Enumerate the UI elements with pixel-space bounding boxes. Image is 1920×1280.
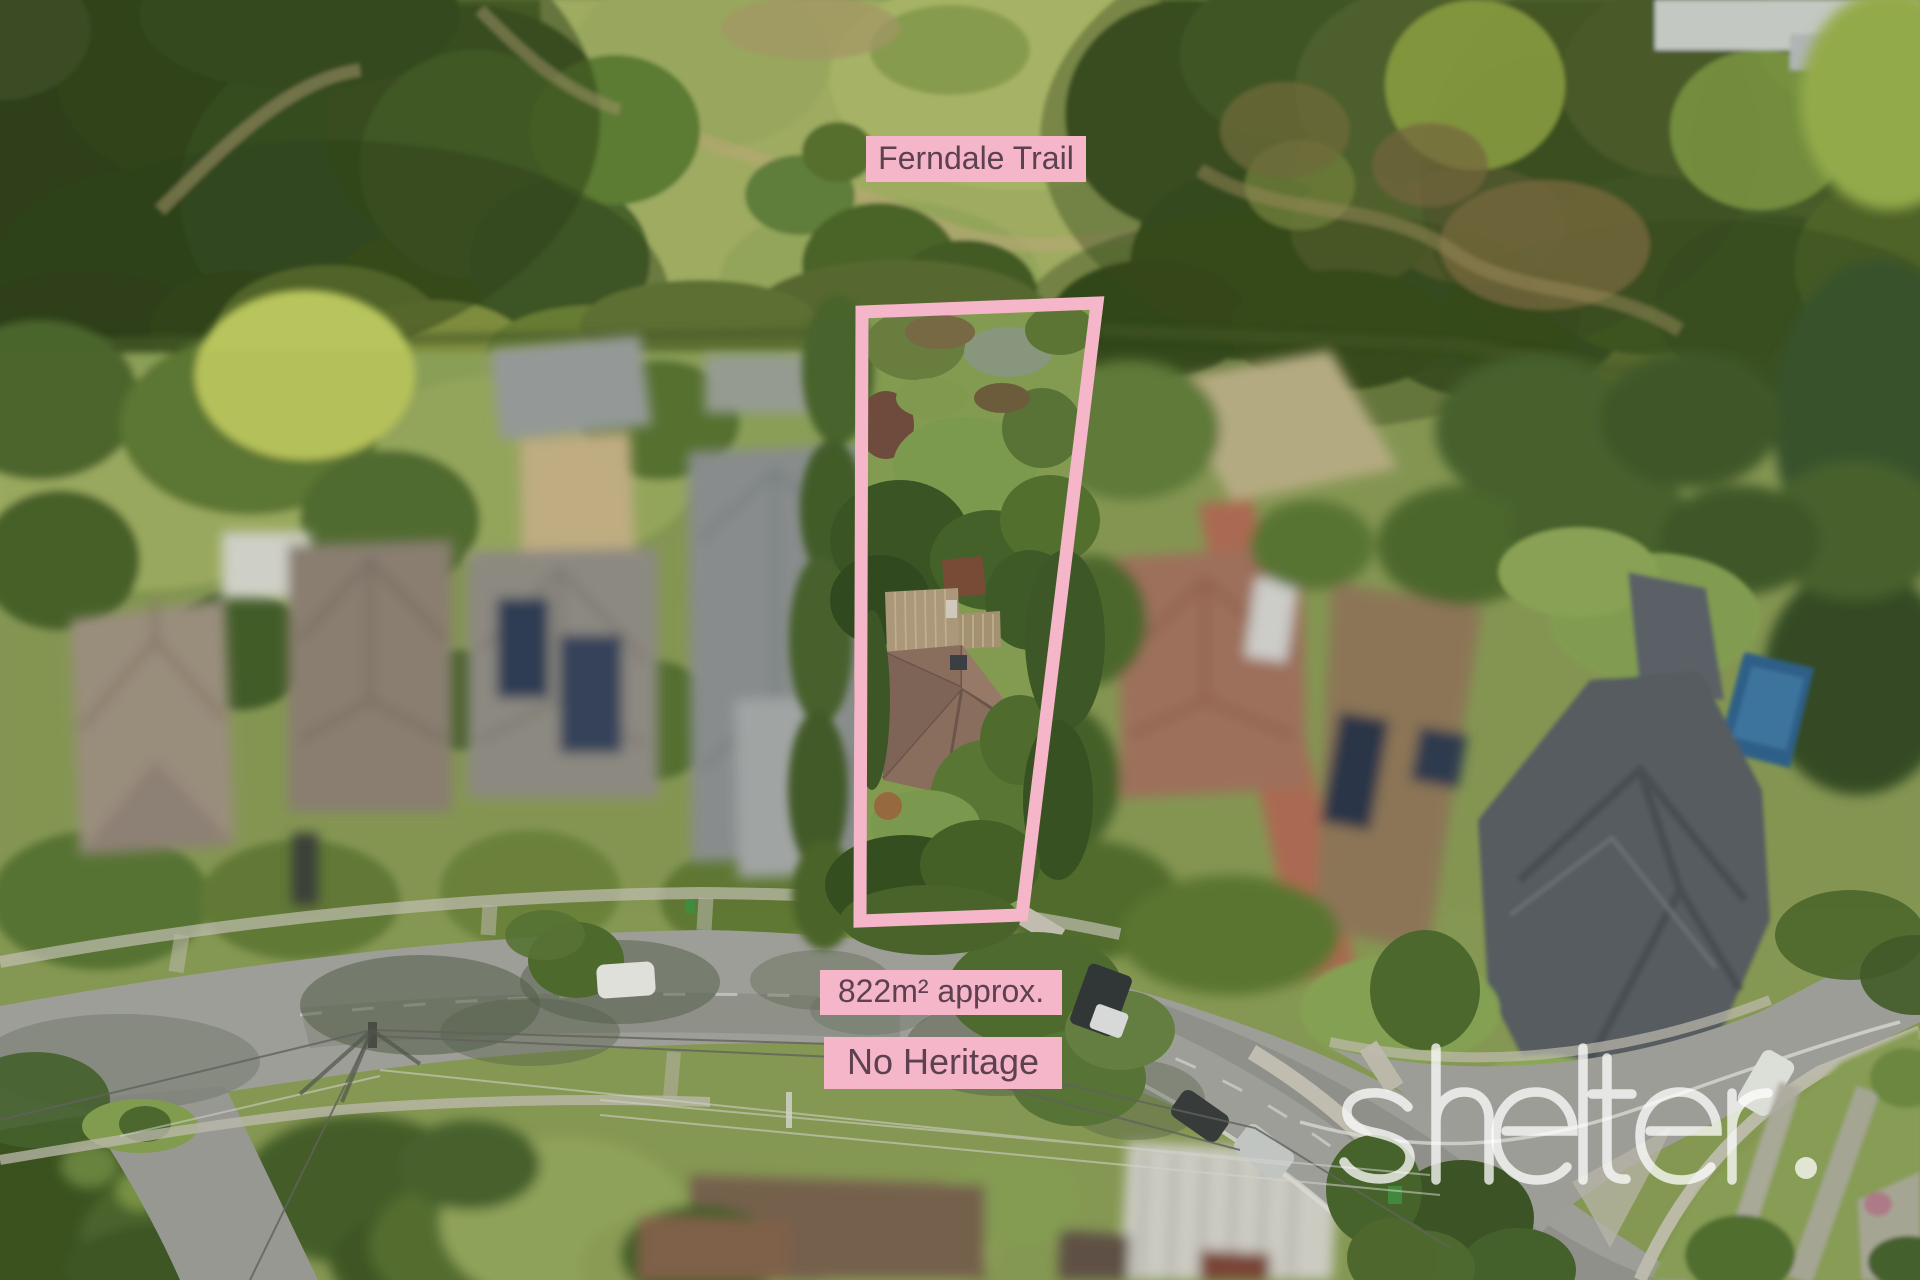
svg-text:No Heritage: No Heritage — [847, 1041, 1039, 1082]
svg-text:822m² approx.: 822m² approx. — [838, 973, 1044, 1009]
svg-text:Ferndale Trail: Ferndale Trail — [878, 140, 1074, 176]
